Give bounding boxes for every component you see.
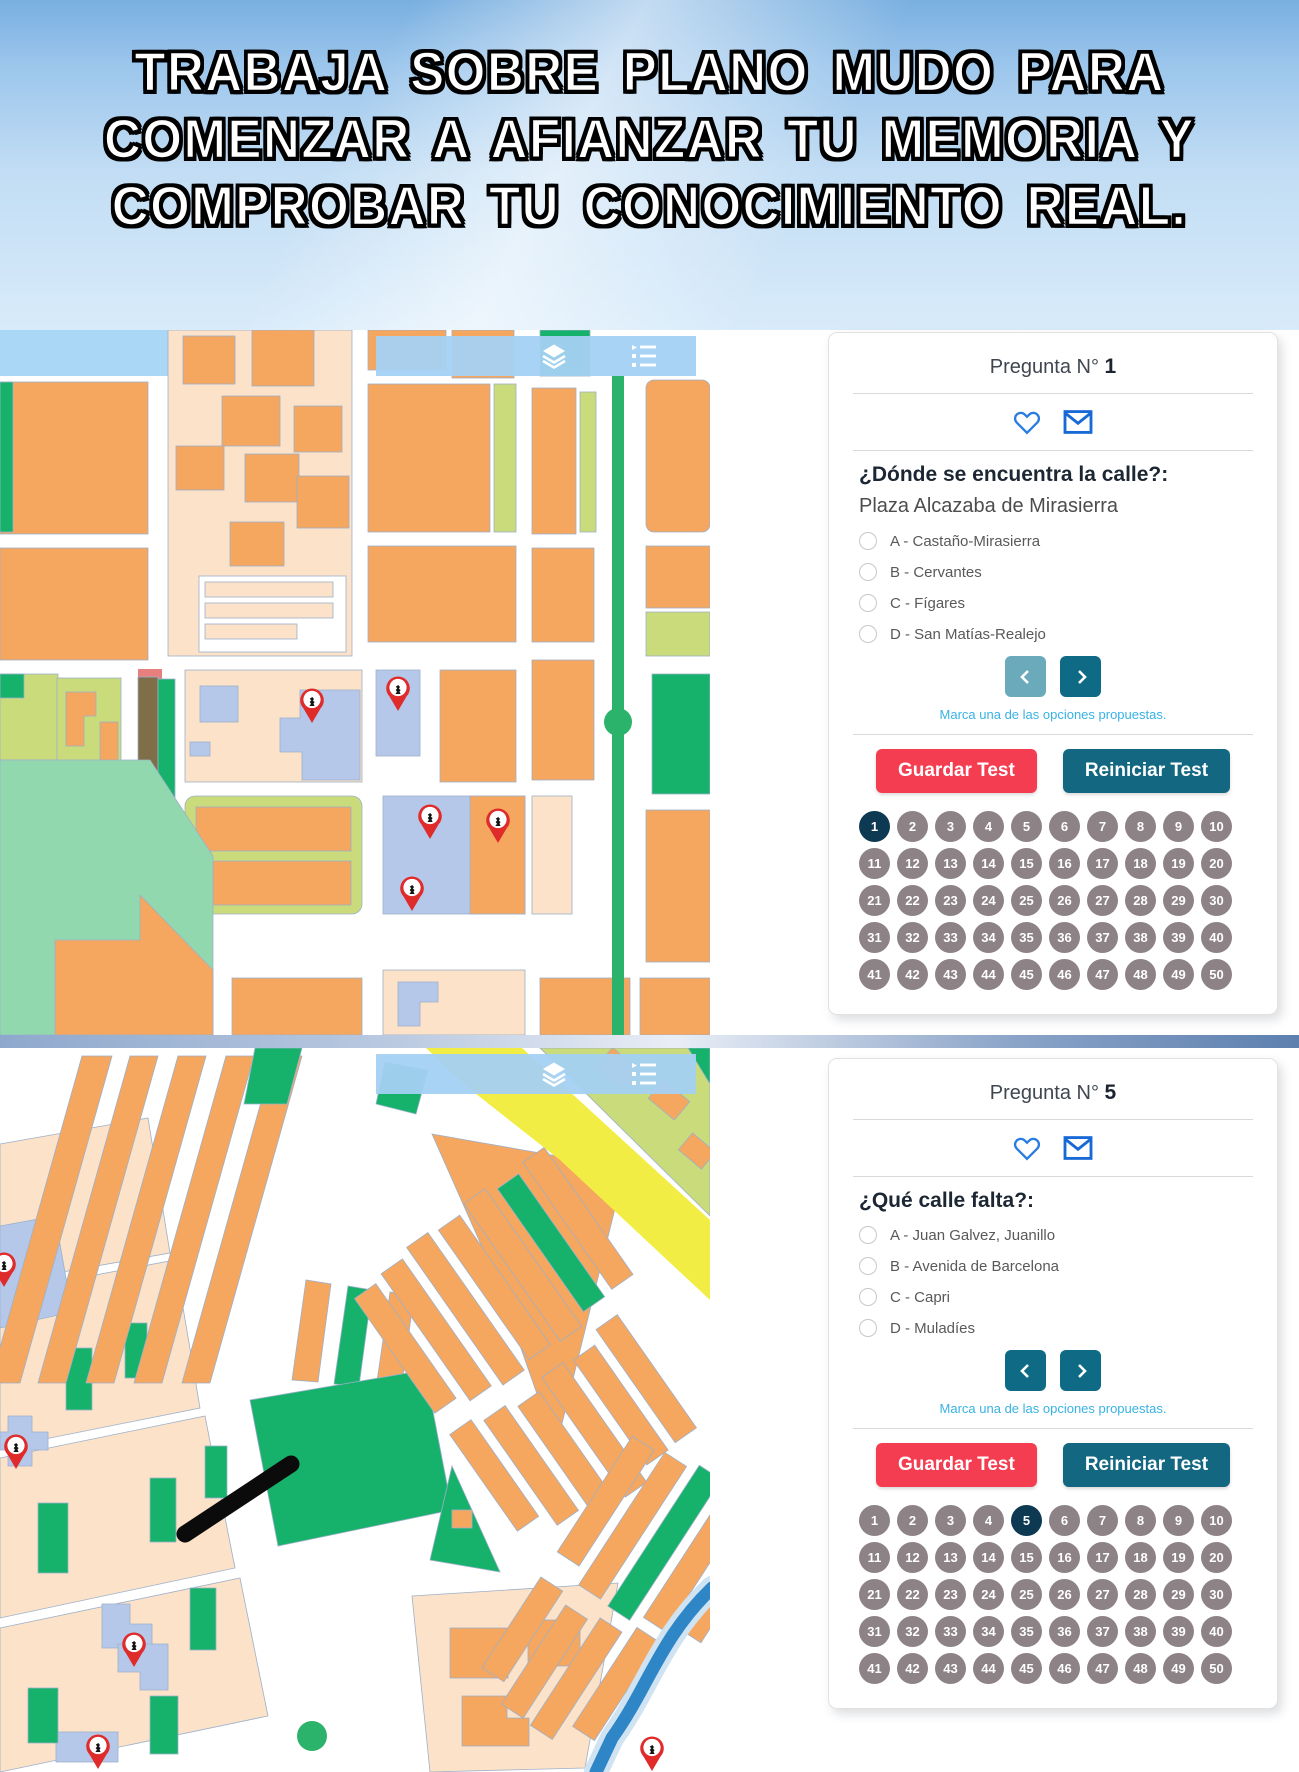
question-number-36[interactable]: 36: [1049, 922, 1080, 953]
question-number-10[interactable]: 10: [1201, 811, 1232, 842]
page: TRABAJA SOBRE PLANO MUDO PARA COMENZAR A…: [0, 0, 1299, 1772]
question-number-37[interactable]: 37: [1087, 1616, 1118, 1647]
test-buttons: Guardar Test Reiniciar Test: [859, 749, 1247, 793]
question-number-18[interactable]: 18: [1125, 848, 1156, 879]
radio-d[interactable]: [859, 625, 877, 643]
divider: [853, 1428, 1253, 1429]
question-number-20[interactable]: 20: [1201, 848, 1232, 879]
question-number-39[interactable]: 39: [1163, 922, 1194, 953]
question-number-3[interactable]: 3: [935, 1505, 966, 1536]
question-number-11[interactable]: 11: [859, 848, 890, 879]
map-canvas-1[interactable]: [0, 330, 710, 1035]
map-toolbar-2: [376, 1054, 696, 1094]
option-d-label: D - Muladíes: [890, 1320, 975, 1337]
question-number-5[interactable]: 5: [1011, 1505, 1042, 1536]
mail-icon[interactable]: [1062, 1135, 1094, 1161]
question-number-46[interactable]: 46: [1049, 959, 1080, 990]
radio-b[interactable]: [859, 1257, 877, 1275]
option-b-label: B - Avenida de Barcelona: [890, 1258, 1059, 1275]
question-number-11[interactable]: 11: [859, 1542, 890, 1573]
page-title: TRABAJA SOBRE PLANO MUDO PARA COMENZAR A…: [0, 0, 1299, 240]
option-c[interactable]: C - Fígares: [859, 594, 1247, 612]
question-number-33[interactable]: 33: [935, 1616, 966, 1647]
question-number-13[interactable]: 13: [935, 848, 966, 879]
radio-b[interactable]: [859, 563, 877, 581]
reset-test-button[interactable]: Reiniciar Test: [1063, 749, 1230, 793]
question-number-22[interactable]: 22: [897, 1579, 928, 1610]
question-number-44[interactable]: 44: [973, 1653, 1004, 1684]
radio-d[interactable]: [859, 1319, 877, 1337]
list-icon[interactable]: [630, 342, 658, 370]
question-header: Pregunta N° 1: [859, 349, 1247, 381]
option-c[interactable]: C - Capri: [859, 1288, 1247, 1306]
layers-icon[interactable]: [540, 1060, 568, 1088]
question-number-31[interactable]: 31: [859, 922, 890, 953]
question-number-37[interactable]: 37: [1087, 922, 1118, 953]
question-number-39[interactable]: 39: [1163, 1616, 1194, 1647]
option-d[interactable]: D - Muladíes: [859, 1319, 1247, 1337]
title-line-2: COMENZAR A AFIANZAR TU MEMORIA Y: [0, 106, 1299, 173]
save-test-button[interactable]: Guardar Test: [876, 1443, 1037, 1487]
question-number-47[interactable]: 47: [1087, 1653, 1118, 1684]
question-number-23[interactable]: 23: [935, 1579, 966, 1610]
question-number-23[interactable]: 23: [935, 885, 966, 916]
chevron-left-icon: [1017, 668, 1035, 686]
question-number-46[interactable]: 46: [1049, 1653, 1080, 1684]
question-number-42[interactable]: 42: [897, 959, 928, 990]
question-street: Plaza Alcazaba de Mirasierra: [859, 495, 1247, 518]
question-number-26[interactable]: 26: [1049, 1579, 1080, 1610]
test-buttons: Guardar Test Reiniciar Test: [859, 1443, 1247, 1487]
options-list: A - Juan Galvez, Juanillo B - Avenida de…: [859, 1226, 1247, 1337]
question-number-44[interactable]: 44: [973, 959, 1004, 990]
question-number-50[interactable]: 50: [1201, 959, 1232, 990]
question-number-21[interactable]: 21: [859, 1579, 890, 1610]
question-number-grid: 1234567891011121314151617181920212223242…: [859, 1503, 1247, 1684]
layers-icon[interactable]: [540, 342, 568, 370]
list-icon[interactable]: [630, 1060, 658, 1088]
question-text: ¿Qué calle falta?:: [859, 1189, 1247, 1213]
option-d[interactable]: D - San Matías-Realejo: [859, 625, 1247, 643]
question-number-14[interactable]: 14: [973, 848, 1004, 879]
question-number-29[interactable]: 29: [1163, 885, 1194, 916]
question-number-45[interactable]: 45: [1011, 959, 1042, 990]
question-number-29[interactable]: 29: [1163, 1579, 1194, 1610]
question-number-31[interactable]: 31: [859, 1616, 890, 1647]
question-number-16[interactable]: 16: [1049, 848, 1080, 879]
question-number-20[interactable]: 20: [1201, 1542, 1232, 1573]
reset-test-button[interactable]: Reiniciar Test: [1063, 1443, 1230, 1487]
question-number-45[interactable]: 45: [1011, 1653, 1042, 1684]
helper-text: Marca una de las opciones propuestas.: [859, 707, 1247, 722]
question-header: Pregunta N° 5: [859, 1075, 1247, 1107]
question-number-49[interactable]: 49: [1163, 959, 1194, 990]
question-number-32[interactable]: 32: [897, 922, 928, 953]
question-number-12[interactable]: 12: [897, 1542, 928, 1573]
option-b[interactable]: B - Avenida de Barcelona: [859, 1257, 1247, 1275]
option-a-label: A - Juan Galvez, Juanillo: [890, 1227, 1055, 1244]
divider: [853, 450, 1253, 451]
hero-banner: TRABAJA SOBRE PLANO MUDO PARA COMENZAR A…: [0, 0, 1299, 330]
question-number-26[interactable]: 26: [1049, 885, 1080, 916]
question-number-17[interactable]: 17: [1087, 1542, 1118, 1573]
question-number-34[interactable]: 34: [973, 922, 1004, 953]
question-number-47[interactable]: 47: [1087, 959, 1118, 990]
chevron-left-icon: [1017, 1362, 1035, 1380]
radio-a[interactable]: [859, 532, 877, 550]
question-number-16[interactable]: 16: [1049, 1542, 1080, 1573]
question-number-9[interactable]: 9: [1163, 811, 1194, 842]
chevron-right-icon: [1072, 668, 1090, 686]
question-number-19[interactable]: 19: [1163, 848, 1194, 879]
question-number: 1: [1105, 355, 1117, 378]
question-number-3[interactable]: 3: [935, 811, 966, 842]
question-number-14[interactable]: 14: [973, 1542, 1004, 1573]
helper-text: Marca una de las opciones propuestas.: [859, 1401, 1247, 1416]
question-number-35[interactable]: 35: [1011, 922, 1042, 953]
question-nav: [859, 1350, 1247, 1391]
question-number-18[interactable]: 18: [1125, 1542, 1156, 1573]
option-c-label: C - Capri: [890, 1289, 950, 1306]
save-test-button[interactable]: Guardar Test: [876, 749, 1037, 793]
divider: [853, 734, 1253, 735]
question-number-27[interactable]: 27: [1087, 885, 1118, 916]
option-a[interactable]: A - Castaño-Mirasierra: [859, 532, 1247, 550]
question-number-24[interactable]: 24: [973, 885, 1004, 916]
question-number-7[interactable]: 7: [1087, 1505, 1118, 1536]
question-number-32[interactable]: 32: [897, 1616, 928, 1647]
question-nav: [859, 656, 1247, 697]
option-b-label: B - Cervantes: [890, 564, 982, 581]
question-number-22[interactable]: 22: [897, 885, 928, 916]
title-line-3: COMPROBAR TU CONOCIMIENTO REAL.: [0, 173, 1299, 240]
question-number-43[interactable]: 43: [935, 959, 966, 990]
question-number-48[interactable]: 48: [1125, 1653, 1156, 1684]
next-question-button-2[interactable]: [1060, 1350, 1101, 1391]
question-number-15[interactable]: 15: [1011, 848, 1042, 879]
question-number-28[interactable]: 28: [1125, 1579, 1156, 1610]
divider: [853, 1176, 1253, 1177]
question-number-25[interactable]: 25: [1011, 1579, 1042, 1610]
question-number-38[interactable]: 38: [1125, 922, 1156, 953]
question-number-50[interactable]: 50: [1201, 1653, 1232, 1684]
option-a-label: A - Castaño-Mirasierra: [890, 533, 1040, 550]
question-number-5[interactable]: 5: [1011, 811, 1042, 842]
question-number-33[interactable]: 33: [935, 922, 966, 953]
question-number: 5: [1105, 1081, 1117, 1104]
section-divider: [0, 1035, 1299, 1048]
question-number-24[interactable]: 24: [973, 1579, 1004, 1610]
option-a[interactable]: A - Juan Galvez, Juanillo: [859, 1226, 1247, 1244]
question-number-15[interactable]: 15: [1011, 1542, 1042, 1573]
question-number-10[interactable]: 10: [1201, 1505, 1232, 1536]
title-line-1: TRABAJA SOBRE PLANO MUDO PARA: [0, 39, 1299, 106]
mute-map-2: [0, 1048, 710, 1772]
question-number-4[interactable]: 4: [973, 1505, 1004, 1536]
question-number-27[interactable]: 27: [1087, 1579, 1118, 1610]
question-number-21[interactable]: 21: [859, 885, 890, 916]
question-number-13[interactable]: 13: [935, 1542, 966, 1573]
question-number-41[interactable]: 41: [859, 959, 890, 990]
option-c-label: C - Fígares: [890, 595, 965, 612]
question-number-8[interactable]: 8: [1125, 811, 1156, 842]
question-number-7[interactable]: 7: [1087, 811, 1118, 842]
question-number-34[interactable]: 34: [973, 1616, 1004, 1647]
question-card-2: Pregunta N° 5 ¿Qué calle falta?: A - Jua…: [828, 1058, 1278, 1709]
next-question-button-1[interactable]: [1060, 656, 1101, 697]
question-number-19[interactable]: 19: [1163, 1542, 1194, 1573]
question-number-28[interactable]: 28: [1125, 885, 1156, 916]
question-number-43[interactable]: 43: [935, 1653, 966, 1684]
question-actions: [859, 406, 1247, 438]
question-label: Pregunta N°: [990, 1082, 1099, 1104]
question-number-9[interactable]: 9: [1163, 1505, 1194, 1536]
mute-map-1: [0, 330, 710, 1035]
question-number-38[interactable]: 38: [1125, 1616, 1156, 1647]
divider: [853, 393, 1253, 394]
question-number-40[interactable]: 40: [1201, 922, 1232, 953]
question-number-48[interactable]: 48: [1125, 959, 1156, 990]
divider: [853, 1119, 1253, 1120]
question-number-4[interactable]: 4: [973, 811, 1004, 842]
map-toolbar-1: [376, 336, 696, 376]
question-number-42[interactable]: 42: [897, 1653, 928, 1684]
chevron-right-icon: [1072, 1362, 1090, 1380]
options-list: A - Castaño-Mirasierra B - Cervantes C -…: [859, 532, 1247, 643]
question-number-35[interactable]: 35: [1011, 1616, 1042, 1647]
option-b[interactable]: B - Cervantes: [859, 563, 1247, 581]
mail-icon[interactable]: [1062, 409, 1094, 435]
question-number-49[interactable]: 49: [1163, 1653, 1194, 1684]
radio-a[interactable]: [859, 1226, 877, 1244]
question-text: ¿Dónde se encuentra la calle?:: [859, 463, 1247, 487]
question-actions: [859, 1132, 1247, 1164]
question-number-6[interactable]: 6: [1049, 811, 1080, 842]
option-d-label: D - San Matías-Realejo: [890, 626, 1046, 643]
map-canvas-2[interactable]: [0, 1048, 710, 1772]
question-number-30[interactable]: 30: [1201, 885, 1232, 916]
question-number-36[interactable]: 36: [1049, 1616, 1080, 1647]
prev-question-button-2[interactable]: [1005, 1350, 1046, 1391]
radio-c[interactable]: [859, 594, 877, 612]
question-number-12[interactable]: 12: [897, 848, 928, 879]
question-number-25[interactable]: 25: [1011, 885, 1042, 916]
question-number-2[interactable]: 2: [897, 1505, 928, 1536]
question-number-6[interactable]: 6: [1049, 1505, 1080, 1536]
radio-c[interactable]: [859, 1288, 877, 1306]
question-number-30[interactable]: 30: [1201, 1579, 1232, 1610]
question-number-17[interactable]: 17: [1087, 848, 1118, 879]
question-number-grid: 1234567891011121314151617181920212223242…: [859, 809, 1247, 990]
question-number-1[interactable]: 1: [859, 811, 890, 842]
question-number-2[interactable]: 2: [897, 811, 928, 842]
question-number-8[interactable]: 8: [1125, 1505, 1156, 1536]
question-label: Pregunta N°: [990, 356, 1099, 378]
favorite-heart-icon[interactable]: [1012, 1134, 1042, 1162]
question-card-1: Pregunta N° 1 ¿Dónde se encuentra la cal…: [828, 332, 1278, 1015]
question-number-41[interactable]: 41: [859, 1653, 890, 1684]
favorite-heart-icon[interactable]: [1012, 408, 1042, 436]
question-number-1[interactable]: 1: [859, 1505, 890, 1536]
prev-question-button-1[interactable]: [1005, 656, 1046, 697]
question-number-40[interactable]: 40: [1201, 1616, 1232, 1647]
